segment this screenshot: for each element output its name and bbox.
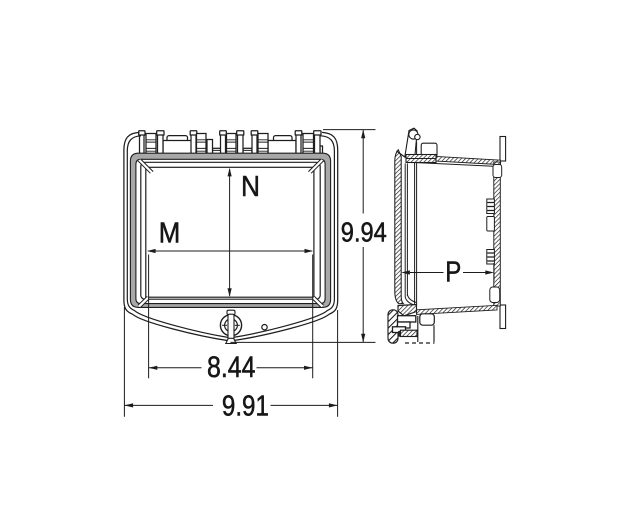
svg-text:9.94: 9.94 bbox=[341, 217, 387, 248]
svg-text:N: N bbox=[241, 171, 260, 203]
svg-text:P: P bbox=[445, 256, 461, 288]
svg-text:9.91: 9.91 bbox=[222, 391, 269, 423]
svg-text:M: M bbox=[159, 217, 181, 249]
svg-text:8.44: 8.44 bbox=[207, 351, 256, 384]
